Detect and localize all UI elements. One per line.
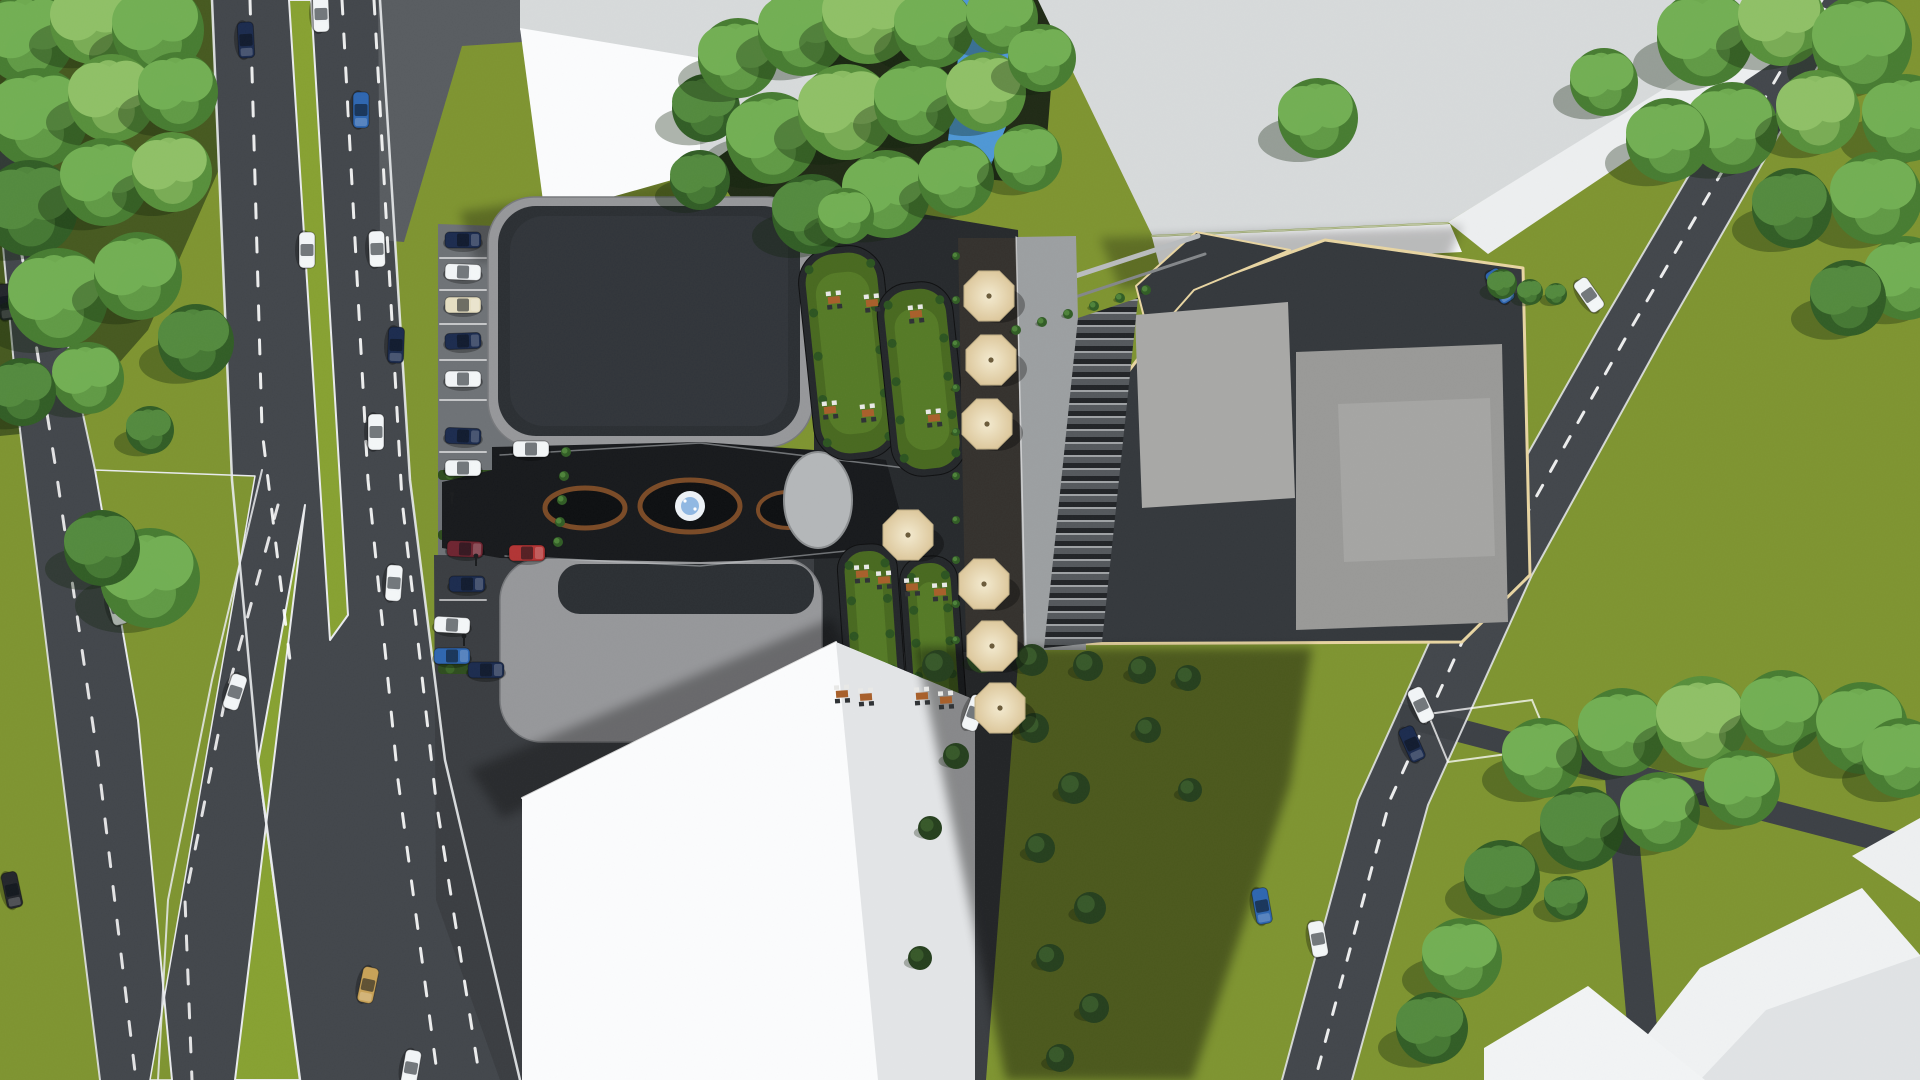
aerial-site-render — [0, 0, 1920, 1080]
film-grain-overlay — [0, 0, 1920, 1080]
scene-canvas — [0, 0, 1920, 1080]
